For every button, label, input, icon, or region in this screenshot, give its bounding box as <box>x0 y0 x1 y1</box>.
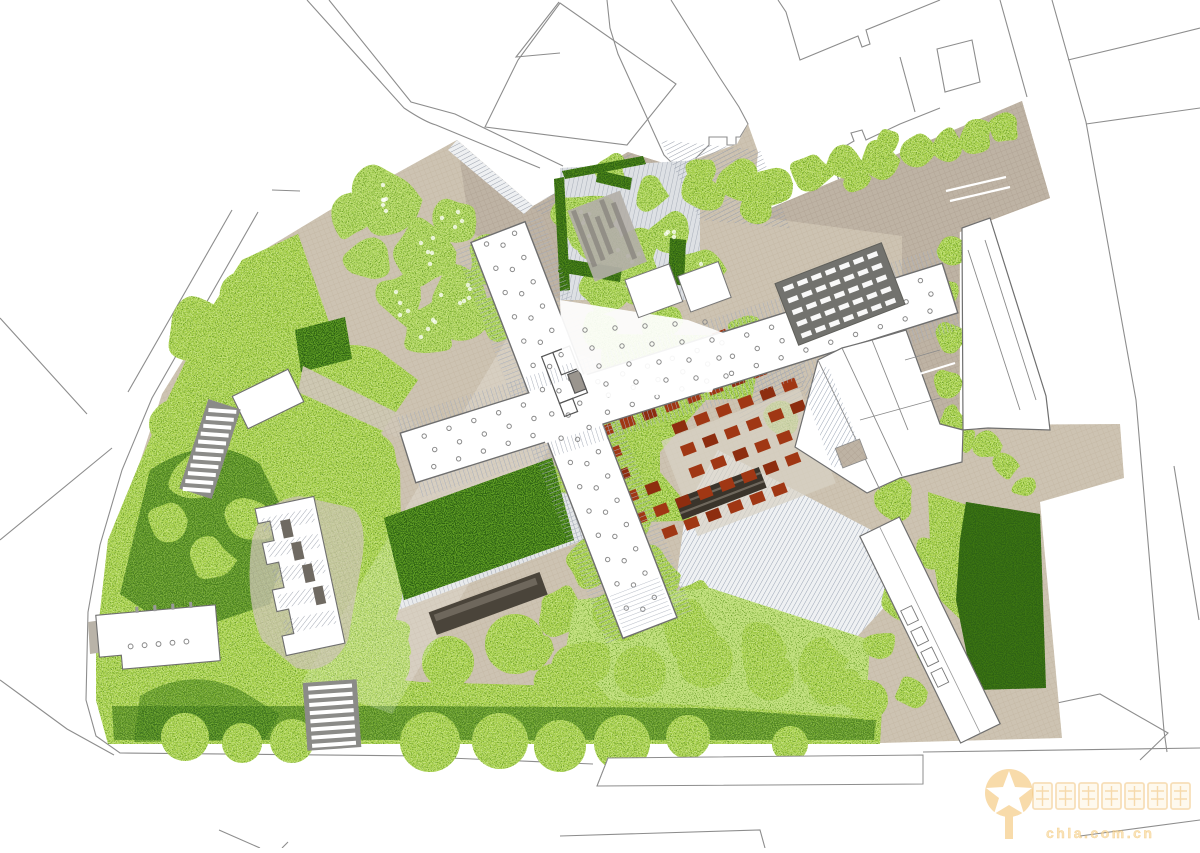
svg-text:chla.com.cn: chla.com.cn <box>1046 825 1154 841</box>
